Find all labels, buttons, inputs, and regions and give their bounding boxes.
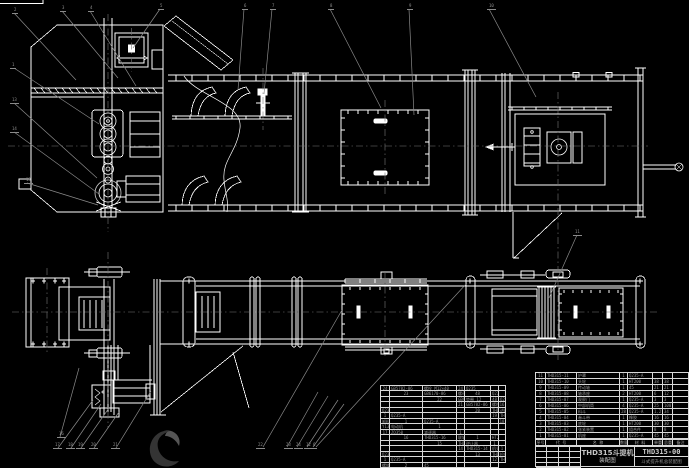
discharge-funnel <box>513 212 562 258</box>
bom-left-cell <box>491 463 499 468</box>
part-callout: 11 <box>573 230 582 236</box>
part-callout: 10 <box>487 4 496 10</box>
drawing-number-cell: THD315-00 斗式提升机总装配图 <box>635 447 688 466</box>
part-callout: 24 <box>294 443 303 449</box>
bom-table-right: 11THD315-11护罩1Q235-A10THD315-10头轮1HT2003… <box>535 372 689 439</box>
drawing-subtitle: 斗式提升机总装配图 <box>635 457 688 466</box>
signature-cell <box>559 463 570 468</box>
signature-cell <box>547 463 558 468</box>
part-callout: 19 <box>76 443 85 449</box>
top-view-buckets <box>182 76 270 212</box>
bottom-view-drive-motor <box>92 345 155 417</box>
logo-watermark <box>150 430 180 466</box>
part-callout: 6 <box>242 4 248 10</box>
bottom-view-tail <box>26 267 249 415</box>
part-callout: 1 <box>10 63 16 69</box>
drawing-number: THD315-00 <box>635 447 688 457</box>
part-callout: 23 <box>284 443 293 449</box>
part-callout: 4 <box>88 6 94 12</box>
bom-table-left: 24GB5782-86螺栓 M12×4024Q23523GB6170-86螺母 … <box>380 385 506 468</box>
part-callout: 3 <box>60 6 66 12</box>
part-callout: 15 <box>24 178 33 184</box>
part-callout: 22 <box>256 443 265 449</box>
drawing-title: THD315斗提机 <box>581 449 633 458</box>
cad-drawing-canvas: 24GB5782-86螺栓 M12×4024Q23523GB6170-86螺母 … <box>0 0 689 468</box>
top-view-inlet-chute <box>164 16 233 70</box>
part-callout: 7 <box>270 4 276 10</box>
bom-left-cell: 螺旋拉紧装置 <box>381 463 390 468</box>
signature-cell <box>570 463 581 468</box>
feed-chute-plan <box>161 346 249 412</box>
bom-left-cell: 2 <box>390 463 423 468</box>
bom-header-row: 序号代 号名 称数量材 料单重总重备注 <box>535 439 689 446</box>
bom-left-cell <box>457 463 465 468</box>
part-callout: 16 <box>57 432 66 438</box>
bottom-view-door <box>342 272 428 354</box>
centerlines <box>8 14 658 428</box>
bom-left-cell: THD315-12 <box>499 457 506 462</box>
top-view-head-drive <box>486 107 683 258</box>
frame-corner <box>0 0 43 4</box>
part-callout: 9 <box>407 4 413 10</box>
signature-cell <box>536 463 547 468</box>
part-callout: 13 <box>10 98 19 104</box>
title-cell: THD315斗提机 装配图 <box>581 447 635 466</box>
bom-left-cell <box>465 463 491 468</box>
part-callout: 18 <box>66 443 75 449</box>
part-callout: 21 <box>111 443 120 449</box>
top-view-casing <box>168 68 646 217</box>
title-block: THD315斗提机 装配图 THD315-00 斗式提升机总装配图 <box>535 446 689 467</box>
drawing-type-label: 装配图 <box>599 458 616 465</box>
part-callout: 20 <box>89 443 98 449</box>
signature-grid <box>536 447 581 468</box>
part-callout: 6 <box>311 443 317 449</box>
part-callout: 17 <box>53 443 62 449</box>
part-callout: 5 <box>158 4 164 10</box>
part-callout: 14 <box>10 127 19 133</box>
part-callout: 2 <box>12 8 18 14</box>
part-callout: 8 <box>328 4 334 10</box>
bom-left-cell: 45 <box>423 463 457 468</box>
